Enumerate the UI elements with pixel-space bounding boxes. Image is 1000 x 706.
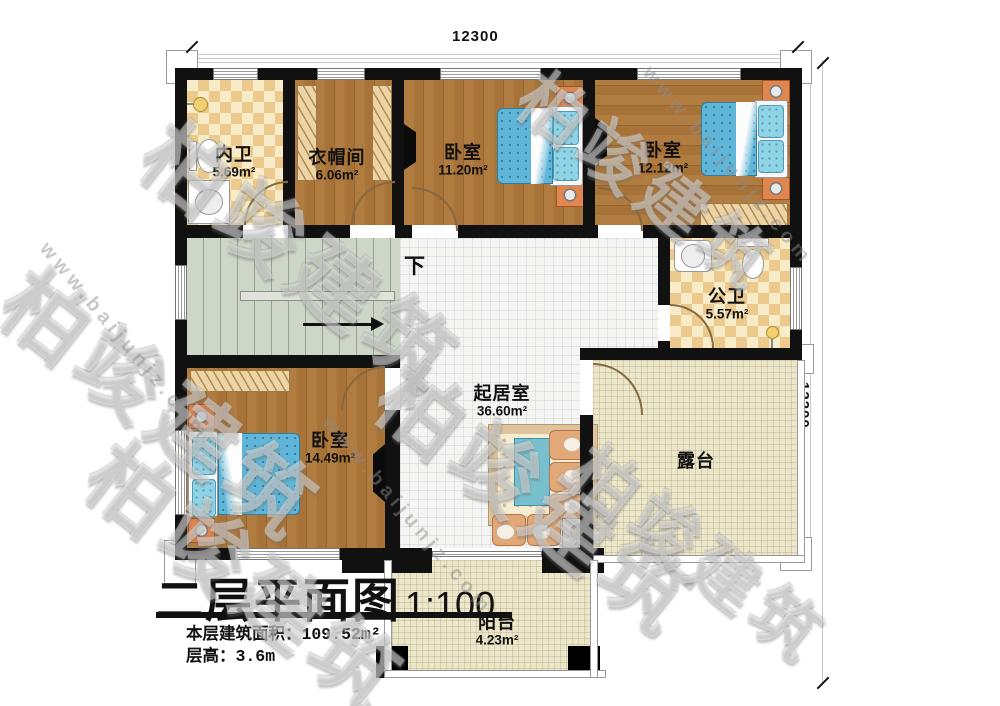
throw-pillow [563,469,581,484]
railing [593,555,805,563]
floor-living-upper [400,238,658,355]
bed-pillow [553,147,579,181]
window [790,267,802,330]
stair-handrail [240,291,395,301]
bed-pillow [758,140,784,173]
sliding-door [432,551,542,557]
nightstand [762,177,790,200]
wardrobe-right [372,85,392,181]
wardrobe-woshi3 [190,370,290,392]
floor-area-line: 本层建筑面积：109.52m² [186,620,381,644]
floor-plan-canvas: 12300 12200 下 [0,0,1000,706]
wall [385,410,400,548]
dim-tick [817,677,830,690]
window [637,68,741,80]
wall [395,225,412,238]
shower-head-icon [766,326,779,339]
bed-pillow [192,479,216,517]
floor-height-line: 层高：3.6m [186,642,275,666]
wall [580,348,802,360]
dim-line-right [822,60,823,685]
window [440,68,541,80]
eave-line [187,62,802,63]
window [317,68,365,80]
label-woshi2: 卧室 12.12m² [638,140,688,175]
wall [175,225,243,238]
shower-head-icon [193,97,208,112]
label-neiwei: 内卫 5.69m² [213,144,256,179]
wall [458,225,598,238]
wall [658,238,670,305]
label-lutai: 露台 [677,451,715,471]
bed-pillow [192,437,216,475]
dim-top-value: 12300 [452,28,499,45]
label-woshi1: 卧室 11.20m² [438,142,488,177]
toilet-tank [189,141,197,171]
throw-pillow [496,524,515,540]
label-woshi3: 卧室 14.49m² [305,430,355,465]
label-gongwei: 公卫 5.57m² [706,286,749,321]
wall [583,80,595,225]
label-qijushi: 起居室 36.60m² [474,383,531,418]
stair-arrow-line [303,323,373,326]
stair-down-label: 下 [404,250,425,280]
shower-hose [186,103,194,105]
bed-pillow [553,111,579,145]
eave-line [187,58,802,59]
sink-basin [195,189,223,215]
wall [580,415,593,548]
wall [643,225,802,238]
eave-line-right [810,84,811,554]
nightstand [556,183,584,207]
coffee-table [514,438,550,506]
railing [590,560,598,678]
label-yimaojian: 衣帽间 6.06m² [309,147,366,182]
bed-pillow [758,105,784,138]
sink-basin [681,244,705,268]
window [175,265,187,320]
wardrobe-woshi2 [700,203,788,227]
toilet-bowl [742,249,764,279]
railing [797,360,805,562]
window [175,430,187,515]
toilet-tank [737,238,769,247]
nightstand [188,404,215,429]
throw-pillow [563,437,581,452]
wall [288,225,350,238]
railing [384,670,606,678]
window [235,548,340,560]
bed-sheet [218,433,242,515]
throw-pillow [532,524,551,540]
scale-label: 1:100 [405,584,495,625]
throw-pillow [563,499,581,514]
window [213,68,258,80]
wall [175,355,400,368]
bed-sheet [736,102,757,176]
eave-line [187,54,802,55]
bed-sheet [531,108,553,184]
dim-tick [817,57,830,70]
title-underline [156,612,512,618]
stair-arrow-head [371,317,384,331]
nightstand [188,518,215,543]
